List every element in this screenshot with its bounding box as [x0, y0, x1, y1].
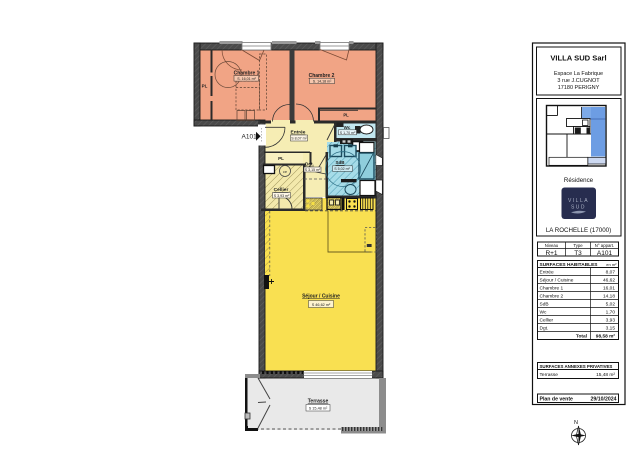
svg-text:3,93: 3,93: [606, 317, 616, 323]
svg-text:Terrasse: Terrasse: [540, 372, 559, 378]
svg-text:Type: Type: [573, 243, 583, 248]
svg-text:SURFACES ANNEXES PRIVATIVES: SURFACES ANNEXES PRIVATIVES: [540, 364, 613, 369]
svg-text:Total: Total: [576, 334, 587, 340]
svg-text:VILLA SUD Sarl: VILLA SUD Sarl: [550, 54, 606, 63]
svg-text:Plan de vente: Plan de vente: [540, 396, 574, 402]
svg-text:14,18: 14,18: [603, 293, 615, 299]
svg-text:Cellier: Cellier: [540, 317, 554, 323]
svg-text:LA ROCHELLE (17000): LA ROCHELLE (17000): [546, 227, 611, 234]
svg-text:16,01: 16,01: [603, 285, 615, 291]
svg-text:VILLA: VILLA: [568, 198, 589, 204]
svg-text:3,15: 3,15: [606, 325, 616, 331]
svg-text:R+1: R+1: [545, 250, 557, 257]
svg-text:Chambre 1: Chambre 1: [540, 285, 564, 291]
svg-text:T3: T3: [574, 250, 582, 257]
svg-text:Entrée: Entrée: [540, 269, 554, 275]
svg-text:8,07: 8,07: [606, 269, 616, 275]
svg-text:3 rue J.CUGNOT: 3 rue J.CUGNOT: [557, 78, 600, 84]
svg-text:en m²: en m²: [606, 262, 617, 267]
svg-text:Séjour / Cuisine: Séjour / Cuisine: [540, 277, 574, 283]
svg-text:29/10/2024: 29/10/2024: [591, 396, 617, 402]
svg-text:SUD: SUD: [571, 205, 586, 211]
svg-text:5,02: 5,02: [606, 301, 616, 307]
svg-text:1,70: 1,70: [606, 309, 616, 315]
svg-text:SdB: SdB: [540, 301, 549, 307]
svg-text:N° appart.: N° appart.: [595, 243, 614, 248]
svg-text:SURFACES HABITABLES: SURFACES HABITABLES: [540, 262, 599, 268]
svg-text:Espace La Fabrique: Espace La Fabrique: [554, 71, 603, 77]
svg-text:Chambre 2: Chambre 2: [540, 293, 564, 299]
svg-text:98,58 m²: 98,58 m²: [596, 334, 616, 340]
svg-text:Dgt.: Dgt.: [540, 325, 549, 331]
svg-text:17180 PERIGNY: 17180 PERIGNY: [558, 85, 600, 91]
svg-text:Niveau: Niveau: [545, 243, 559, 248]
svg-text:A101: A101: [597, 250, 613, 257]
svg-text:46,62: 46,62: [603, 277, 615, 283]
svg-text:Wc: Wc: [540, 309, 548, 315]
svg-text:N: N: [574, 420, 578, 426]
svg-text:Résidence: Résidence: [564, 177, 594, 184]
svg-text:15,48 m²: 15,48 m²: [596, 372, 615, 378]
